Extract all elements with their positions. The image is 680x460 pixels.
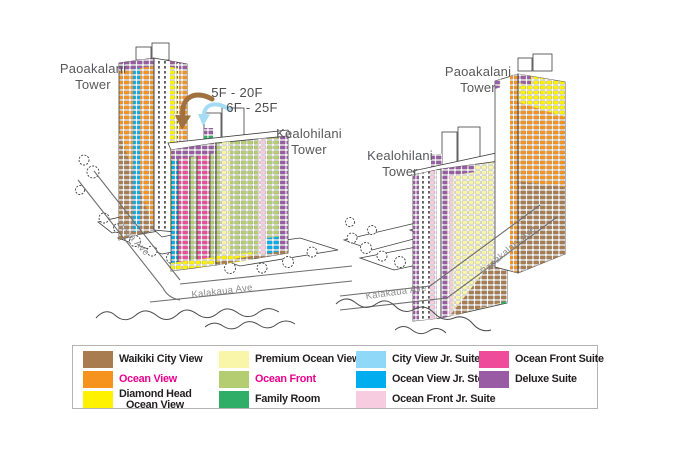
legend-item: Diamond Head Ocean View — [83, 391, 219, 408]
legend-swatch-diamond-head-ocean-view — [83, 391, 113, 408]
left-kealohilani-label-line2: Tower — [291, 142, 327, 157]
legend-swatch-ocean-front-suite — [479, 351, 509, 368]
legend-item: Ocean View Jr. Ste — [356, 371, 479, 388]
penthouse-box — [136, 47, 151, 60]
legend-swatch-city-view-jr-suite — [356, 351, 386, 368]
kalakaua-ave-label-left: Kalakaua Ave — [191, 282, 253, 300]
tower-face — [171, 149, 178, 271]
legend-swatch-family-room — [219, 391, 249, 408]
legend-label: Deluxe Suite — [515, 374, 577, 385]
legend-swatch-ocean-view — [83, 371, 113, 388]
tower-face — [133, 60, 140, 232]
legend-column-4: Ocean Front Suite Deluxe Suite — [479, 351, 597, 408]
legend-item: Premium Ocean View — [219, 351, 356, 368]
legend-column-1: Waikiki City View Ocean View Diamond Hea… — [83, 351, 219, 408]
tower-face — [518, 181, 565, 273]
legend-item: Ocean Front Suite — [479, 351, 597, 368]
legend-item: Family Room — [219, 391, 356, 408]
hotel-room-type-map: 5F - 20F 6F - 25F Ohua Ave Kalakaua Ave … — [0, 0, 680, 460]
right-paoakalani-tower — [495, 54, 565, 273]
tower-face — [258, 138, 266, 258]
legend-label: Ocean Front Suite — [515, 354, 604, 365]
tower-face — [197, 144, 210, 268]
legend-column-2: Premium Ocean View Ocean Front Family Ro… — [219, 351, 356, 408]
right-illustration: Kalakaua Ave Paoakalani Ave Paoakalani T… — [336, 54, 565, 334]
legend-item: Ocean Front — [219, 371, 356, 388]
legend-item: Ocean Front Jr. Suite — [356, 391, 479, 408]
legend-label: Family Room — [255, 394, 320, 405]
legend-item: City View Jr. Suite — [356, 351, 479, 368]
left-illustration: 5F - 20F 6F - 25F Ohua Ave Kalakaua Ave … — [60, 43, 352, 329]
legend-label: City View Jr. Suite — [392, 354, 480, 365]
left-shoreline — [96, 309, 295, 329]
tower-face — [430, 170, 437, 320]
tower-face — [178, 147, 190, 270]
legend-label-line1: Diamond Head — [119, 389, 192, 400]
right-paoakalani-label-line2: Tower — [460, 80, 496, 95]
tower-face — [441, 168, 447, 318]
towers-illustration: 5F - 20F 6F - 25F Ohua Ave Kalakaua Ave … — [0, 0, 680, 345]
legend-swatch-ocean-view-jr-ste — [356, 371, 386, 388]
tower-face — [190, 146, 197, 269]
tower-face — [222, 142, 230, 264]
legend-label: Ocean View — [119, 374, 177, 385]
left-kealohilani-label-line1: Kealohilani — [276, 126, 342, 141]
legend-swatch-waikiki-city-view — [83, 351, 113, 368]
tower-face — [280, 136, 288, 254]
floor-range-line1: 5F - 20F — [211, 85, 263, 100]
legend: Waikiki City View Ocean View Diamond Hea… — [72, 345, 598, 409]
floor-range-line2: 6F - 25F — [226, 100, 278, 115]
legend-swatch-ocean-front — [219, 371, 249, 388]
legend-label: Waikiki City View — [119, 354, 202, 365]
legend-item: Waikiki City View — [83, 351, 219, 368]
legend-swatch-premium-ocean-view — [219, 351, 249, 368]
penthouse-cells — [204, 128, 213, 135]
legend-column-3: City View Jr. Suite Ocean View Jr. Ste O… — [356, 351, 479, 408]
legend-item: Ocean View — [83, 371, 219, 388]
legend-swatch-deluxe-suite — [479, 371, 509, 388]
left-paoakalani-label-line1: Paoakalani — [60, 61, 126, 76]
penthouse-box — [518, 58, 532, 71]
right-kealohilani-label-line2: Tower — [382, 164, 418, 179]
penthouse-box — [152, 43, 169, 60]
legend-label: Premium Ocean View — [255, 354, 360, 365]
tower-face — [210, 143, 216, 266]
legend-swatch-ocean-front-jr-suite — [356, 391, 386, 408]
legend-label: Diamond Head Ocean View — [119, 389, 192, 410]
legend-label: Ocean View Jr. Ste — [392, 374, 483, 385]
right-paoakalani-label-line1: Paoakalani — [445, 64, 511, 79]
tower-face — [413, 174, 419, 321]
legend-label-line2: Ocean View — [119, 400, 192, 411]
penthouse-box — [533, 54, 552, 71]
right-kealohilani-label-line1: Kealohilani — [367, 148, 433, 163]
legend-item: Deluxe Suite — [479, 371, 597, 388]
tower-face — [419, 171, 430, 320]
legend-label: Ocean Front — [255, 374, 316, 385]
left-paoakalani-label-line2: Tower — [75, 77, 111, 92]
